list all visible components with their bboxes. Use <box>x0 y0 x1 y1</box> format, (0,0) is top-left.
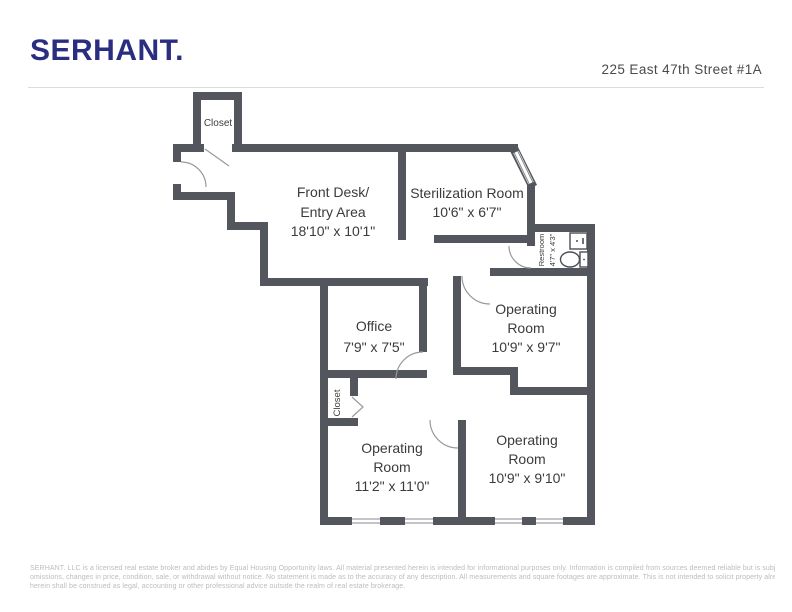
window <box>352 517 380 525</box>
wall <box>234 92 242 152</box>
svg-text:Operating: Operating <box>496 432 557 448</box>
svg-text:4'7" x 4'3": 4'7" x 4'3" <box>548 233 557 266</box>
operating-room-2-label: Operating Room 11'2" x 11'0" <box>355 440 430 494</box>
wall <box>398 152 406 240</box>
svg-text:Room: Room <box>508 451 545 467</box>
svg-text:Operating: Operating <box>361 440 422 456</box>
operating1-door-arc <box>462 276 490 304</box>
sterilization-label: Sterilization Room 10'6" x 6'7" <box>410 185 524 220</box>
window <box>495 517 522 525</box>
svg-text:Sterilization Room: Sterilization Room <box>410 185 524 201</box>
room-labels: Closet Front Desk/ Entry Area 18'10" x 1… <box>204 118 566 494</box>
wall <box>510 387 595 395</box>
restroom-fixtures <box>561 233 589 267</box>
disclaimer-line: herein shall be construed as legal, acco… <box>30 582 775 591</box>
front-desk-label: Front Desk/ Entry Area 18'10" x 10'1" <box>291 184 376 239</box>
wall <box>328 418 358 426</box>
svg-text:Office: Office <box>356 318 393 334</box>
legal-disclaimer: SERHANT. LLC is a licensed real estate b… <box>30 564 775 591</box>
diagonal-window <box>513 147 533 187</box>
toilet-icon <box>561 252 589 267</box>
wall <box>260 278 428 286</box>
wall <box>350 378 358 396</box>
svg-text:Front Desk/: Front Desk/ <box>297 184 369 200</box>
window <box>536 517 563 525</box>
wall <box>458 420 466 525</box>
wall <box>320 370 427 378</box>
wall <box>320 278 328 525</box>
wall <box>173 192 235 200</box>
wall <box>434 235 535 243</box>
disclaimer-line: omissions, changes in price, condition, … <box>30 573 775 582</box>
closet-top-label: Closet <box>204 118 233 129</box>
restroom-label: Restroom 4'7" x 4'3" <box>537 233 557 266</box>
wall <box>173 144 181 162</box>
wall <box>419 286 427 352</box>
operating-room-1-label: Operating Room 10'9" x 9'7" <box>492 301 561 355</box>
wall <box>260 222 268 282</box>
window <box>405 517 433 525</box>
svg-text:Room: Room <box>373 459 410 475</box>
svg-text:7'9" x 7'5": 7'9" x 7'5" <box>343 339 404 355</box>
disclaimer-line: SERHANT. LLC is a licensed real estate b… <box>30 564 775 573</box>
operating-room-3-label: Operating Room 10'9" x 9'10" <box>489 432 566 486</box>
floor-plan: Closet Front Desk/ Entry Area 18'10" x 1… <box>0 0 792 612</box>
operating2-door-arc <box>430 420 458 448</box>
entry-door-arc <box>181 162 206 187</box>
wall <box>490 268 595 276</box>
wall <box>453 367 518 375</box>
svg-text:10'9" x 9'7": 10'9" x 9'7" <box>492 339 561 355</box>
office-label: Office 7'9" x 7'5" <box>343 318 404 355</box>
svg-text:Entry Area: Entry Area <box>300 204 366 220</box>
closet-mid-label: Closet <box>332 389 343 416</box>
restroom-door-arc <box>509 246 531 268</box>
svg-text:Operating: Operating <box>495 301 556 317</box>
wall <box>527 185 535 246</box>
wall <box>453 276 461 375</box>
svg-text:10'9" x 9'10": 10'9" x 9'10" <box>489 470 566 486</box>
svg-text:Room: Room <box>507 320 544 336</box>
sink-icon <box>570 233 587 249</box>
wall <box>535 224 595 232</box>
svg-text:11'2" x 11'0": 11'2" x 11'0" <box>355 478 430 494</box>
svg-text:10'6" x 6'7": 10'6" x 6'7" <box>433 204 502 220</box>
wall <box>193 92 201 152</box>
closet-bifold-chevron <box>352 397 363 417</box>
svg-text:18'10" x 10'1": 18'10" x 10'1" <box>291 223 376 239</box>
svg-text:Restroom: Restroom <box>537 234 546 267</box>
